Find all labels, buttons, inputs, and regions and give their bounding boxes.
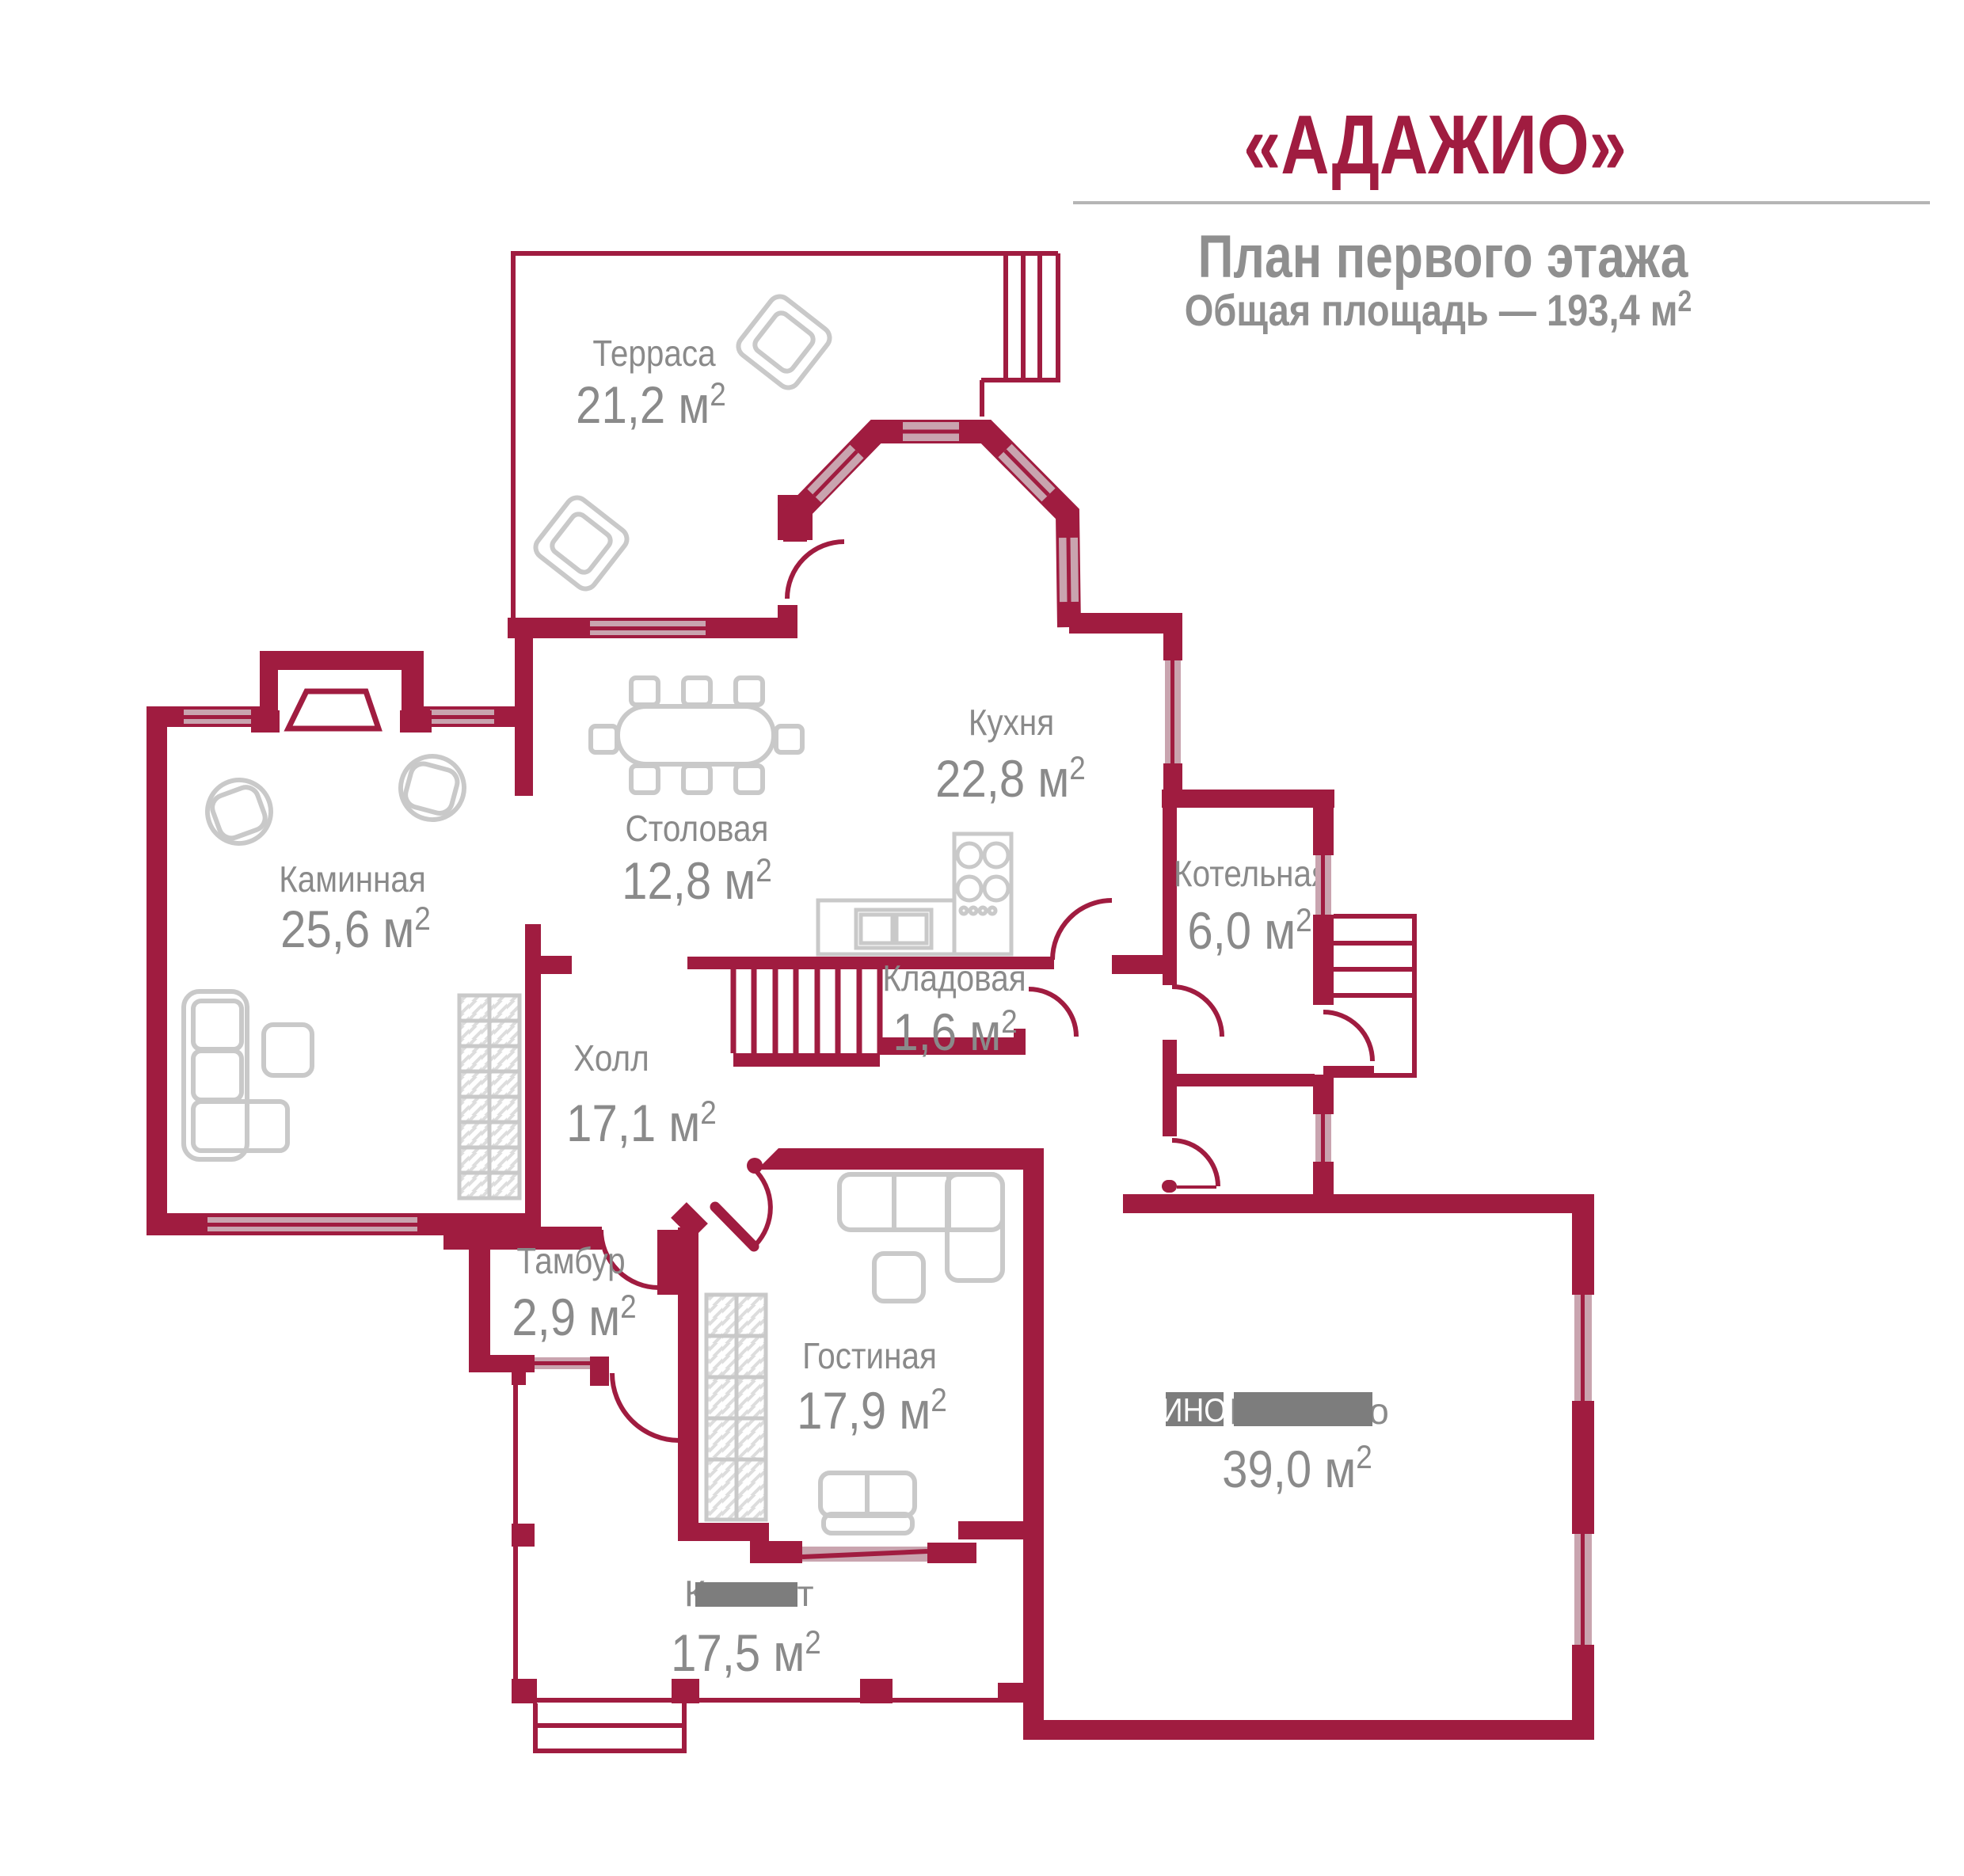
svg-text:12,8 м2: 12,8 м2	[622, 852, 772, 911]
svg-text:Кухня: Кухня	[969, 703, 1054, 744]
svg-text:Общая площадь — 193,4 м2: Общая площадь — 193,4 м2	[1185, 284, 1692, 334]
svg-text:Кладовая: Кладовая	[882, 959, 1026, 999]
svg-text:17,1 м2: 17,1 м2	[566, 1094, 717, 1153]
svg-text:ИНО: ИНО	[1162, 1392, 1227, 1429]
svg-text:Столовая: Столовая	[626, 809, 769, 850]
svg-text:1,6 м2: 1,6 м2	[893, 1003, 1017, 1062]
svg-text:Каминная: Каминная	[279, 860, 426, 900]
svg-text:Гостиная: Гостиная	[802, 1337, 937, 1377]
svg-text:6,0 м2: 6,0 м2	[1187, 902, 1311, 961]
svg-text:2,9 м2: 2,9 м2	[512, 1288, 636, 1347]
svg-text:25,6 м2: 25,6 м2	[280, 900, 431, 959]
svg-text:22,8 м2: 22,8 м2	[935, 750, 1086, 809]
svg-text:т: т	[797, 1573, 813, 1614]
svg-text:21,2 м2: 21,2 м2	[576, 376, 726, 435]
svg-text:Котельная: Котельная	[1174, 854, 1329, 895]
svg-text:План первого этажа: План первого этажа	[1198, 223, 1689, 290]
svg-text:«АДАЖИО»: «АДАЖИО»	[1243, 98, 1627, 192]
svg-text:Холл: Холл	[573, 1039, 649, 1079]
svg-text:Тамбур: Тамбур	[516, 1242, 625, 1282]
svg-text:17,9 м2: 17,9 м2	[797, 1382, 947, 1440]
svg-text:39,0 м2: 39,0 м2	[1222, 1439, 1372, 1499]
svg-text:17,5 м2: 17,5 м2	[671, 1624, 821, 1683]
svg-text:Терраса: Терраса	[592, 334, 716, 375]
